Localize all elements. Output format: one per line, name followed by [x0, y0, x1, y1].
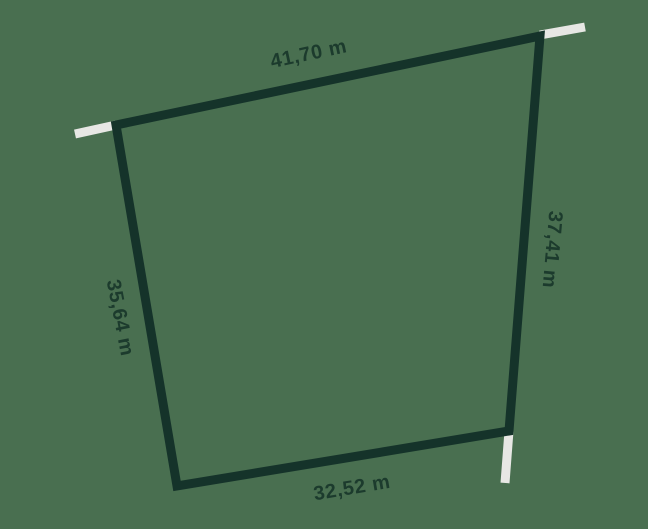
plot-diagram-svg: 41,70 m 37,41 m 32,52 m 35,64 m [0, 0, 648, 529]
side-label-left: 35,64 m [102, 278, 138, 358]
side-label-top: 41,70 m [269, 35, 349, 73]
plot-sketch: 41,70 m 37,41 m 32,52 m 35,64 m [0, 0, 648, 529]
parcel-outline [116, 36, 540, 486]
side-label-right: 37,41 m [538, 210, 567, 289]
canvas: { "colors": { "background": "#496F50", "… [0, 0, 648, 529]
side-label-bottom: 32,52 m [312, 471, 392, 506]
